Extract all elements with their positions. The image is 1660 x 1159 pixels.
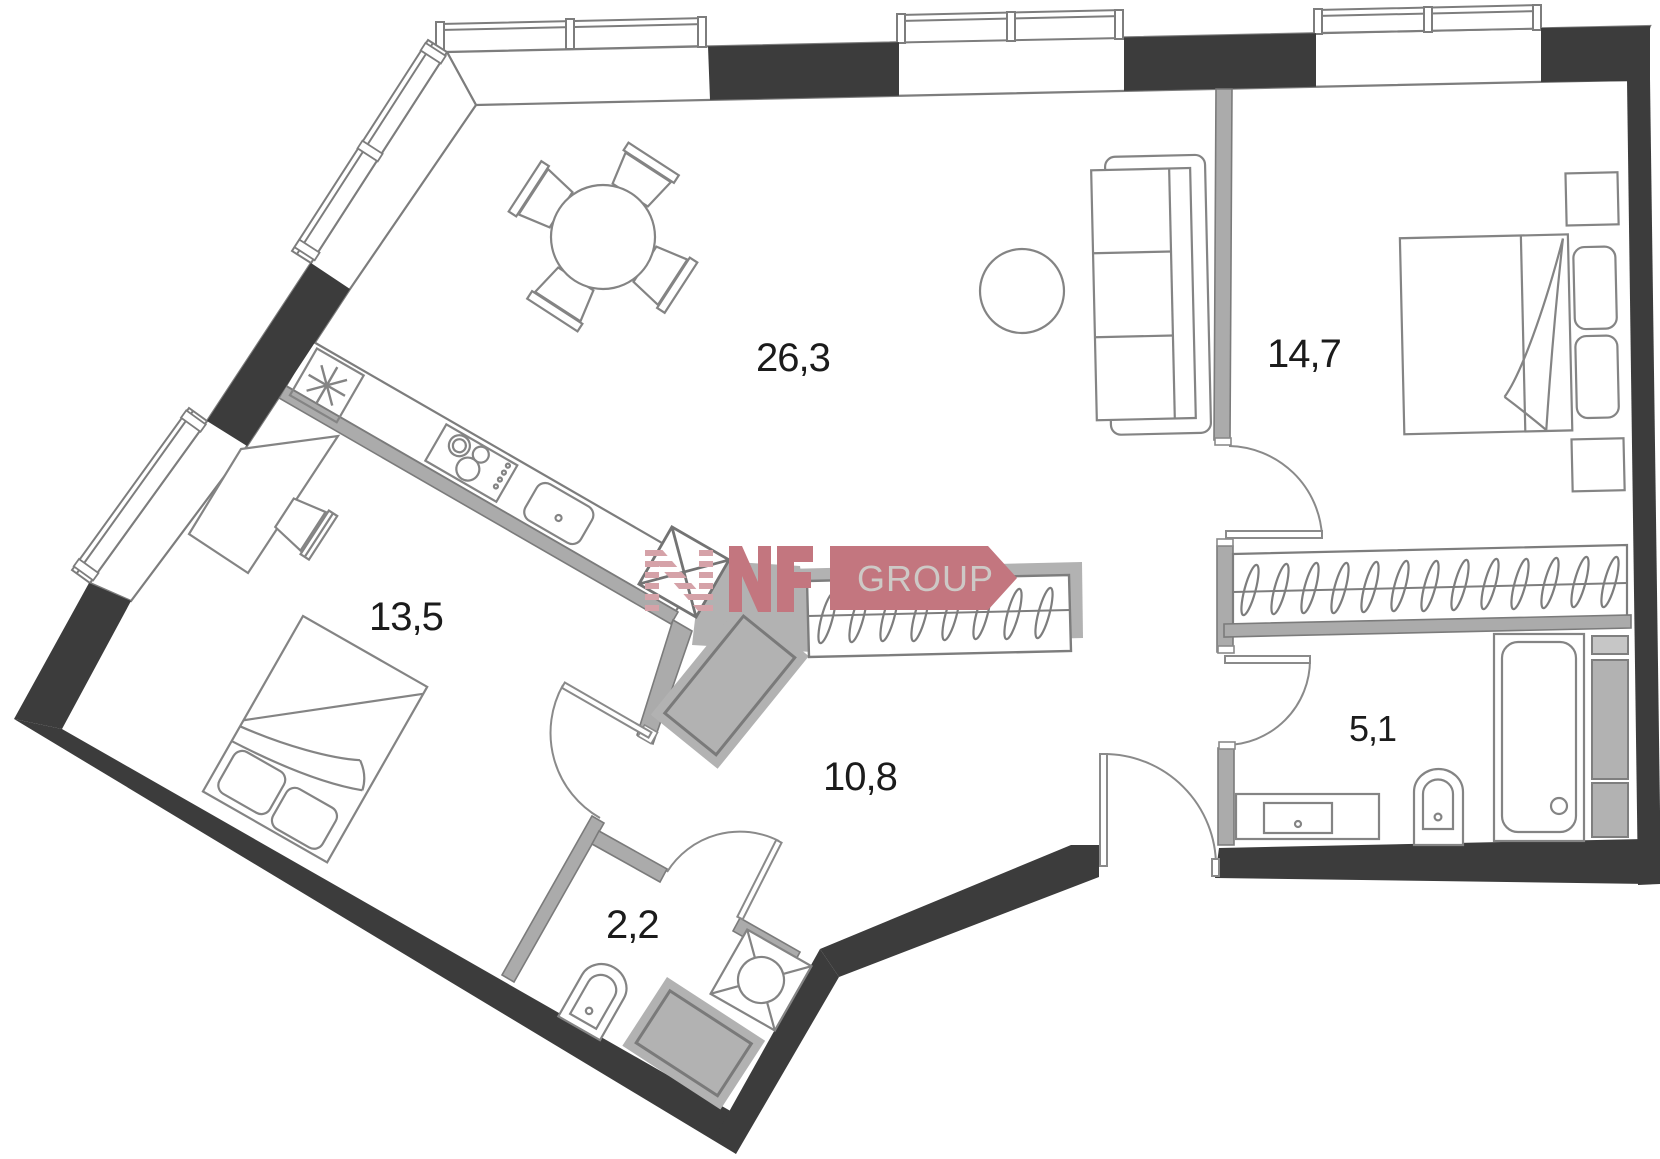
svg-text:14,7: 14,7	[1267, 332, 1341, 376]
svg-text:2,2: 2,2	[606, 903, 659, 947]
svg-text:26,3: 26,3	[756, 336, 830, 380]
svg-text:GROUP: GROUP	[857, 558, 994, 599]
svg-text:13,5: 13,5	[369, 595, 443, 639]
svg-text:10,8: 10,8	[823, 755, 897, 799]
svg-text:5,1: 5,1	[1349, 708, 1396, 749]
